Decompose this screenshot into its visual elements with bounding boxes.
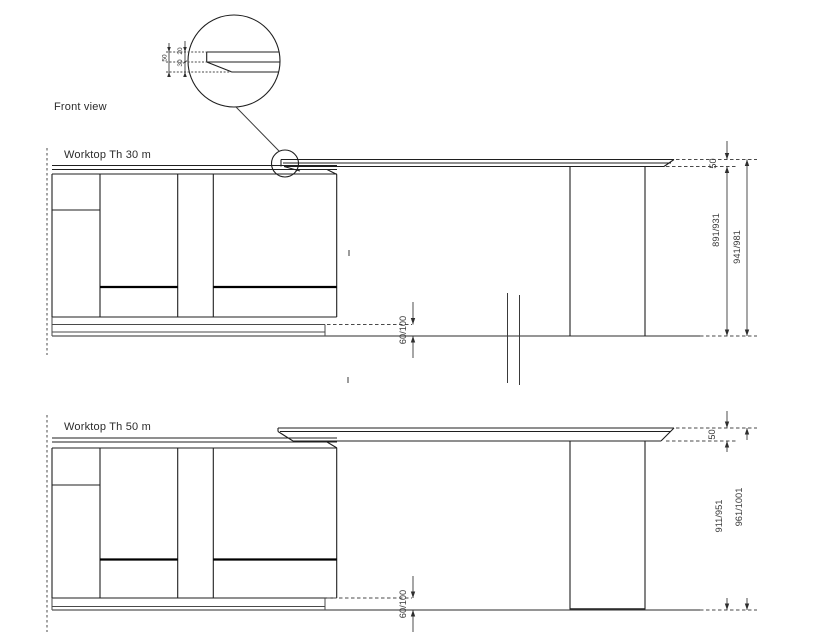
worktop-th50-label: Worktop Th 50 m — [64, 421, 151, 433]
table-leg — [570, 442, 645, 610]
edge-thickness-label: 50 — [707, 429, 717, 439]
plinth-height-label: 60/100 — [398, 316, 408, 344]
detail-leader-line — [236, 107, 279, 151]
technical-drawing-page: 20 30 50 Front view Worktop Th 30 m 60/1… — [0, 0, 825, 638]
worktop-th30-label: Worktop Th 30 m — [64, 149, 151, 161]
plinth-dim-arrows — [411, 318, 415, 343]
plinth-dim-arrows — [411, 592, 415, 617]
height-underside-label: 911/951 — [714, 500, 724, 533]
cabinet-outline — [52, 174, 337, 317]
edge-thickness-label: 50 — [708, 158, 718, 168]
height-total-label: 961/1001 — [734, 488, 744, 527]
detail-total-dim: 50 — [162, 54, 169, 62]
detail-circle — [188, 15, 280, 107]
plinth — [52, 317, 325, 336]
plinth-height-label: 60/100 — [398, 590, 408, 618]
break-lines — [508, 293, 520, 385]
detail-top-face-dim: 20 — [177, 47, 184, 55]
detail-callout: 20 30 50 — [162, 15, 281, 151]
detail-edge-profile — [207, 52, 280, 72]
reference-ticks — [348, 250, 349, 383]
plinth — [52, 598, 325, 610]
detail-dimension-lines — [169, 41, 187, 75]
cabinet-outline — [52, 448, 337, 598]
drawing-worktop-th30: Worktop Th 30 m 60/100 50 891/931 941/98… — [47, 141, 757, 385]
height-underside-label: 891/931 — [711, 213, 721, 247]
height-total-label: 941/981 — [732, 230, 742, 264]
drawing-worktop-th50: Worktop Th 50 m 60/100 50 911/951 961/10… — [47, 411, 757, 632]
front-view-title: Front view — [54, 101, 107, 113]
table-leg — [570, 167, 645, 336]
dimension-extension-lines — [327, 428, 757, 598]
dimension-extension-lines — [327, 160, 757, 325]
detail-bevel-dim: 30 — [177, 59, 184, 67]
drawing-canvas: 20 30 50 Front view Worktop Th 30 m 60/1… — [0, 0, 825, 638]
worktop-profile — [52, 160, 674, 175]
